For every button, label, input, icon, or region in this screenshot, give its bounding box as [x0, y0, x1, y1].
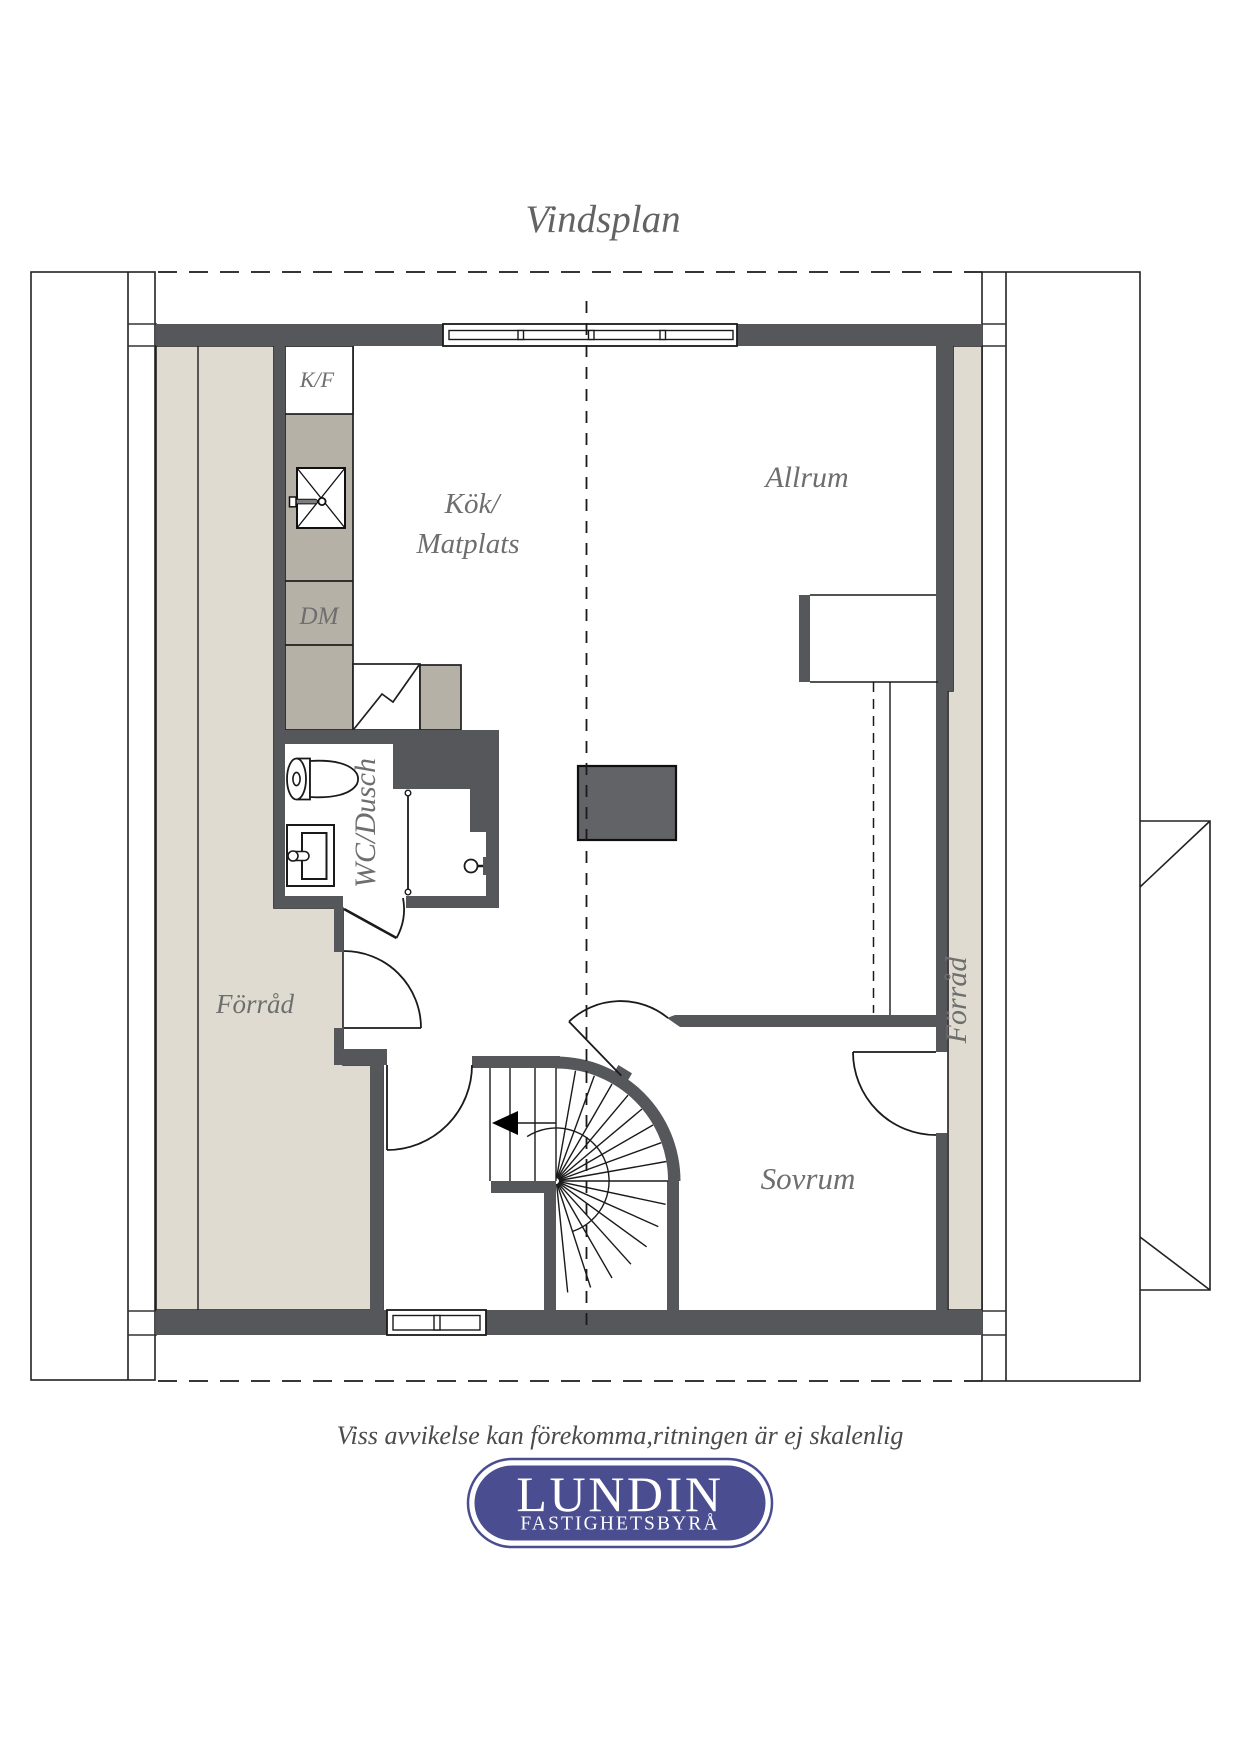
svg-text:Matplats: Matplats [415, 528, 519, 560]
svg-text:Allrum: Allrum [763, 461, 848, 494]
svg-text:Sovrum: Sovrum [761, 1161, 856, 1196]
svg-text:FASTIGHETSBYRÅ: FASTIGHETSBYRÅ [520, 1514, 719, 1535]
svg-text:Vindsplan: Vindsplan [525, 198, 680, 241]
svg-text:Förråd: Förråd [940, 956, 973, 1045]
svg-text:WC/Dusch: WC/Dusch [349, 758, 382, 888]
svg-text:Viss avvikelse kan förekomma,r: Viss avvikelse kan förekomma,ritningen ä… [337, 1421, 904, 1450]
svg-text:DM: DM [299, 603, 340, 630]
svg-text:Kök/: Kök/ [444, 488, 503, 520]
svg-text:Förråd: Förråd [215, 989, 295, 1019]
svg-text:K/F: K/F [299, 367, 335, 392]
